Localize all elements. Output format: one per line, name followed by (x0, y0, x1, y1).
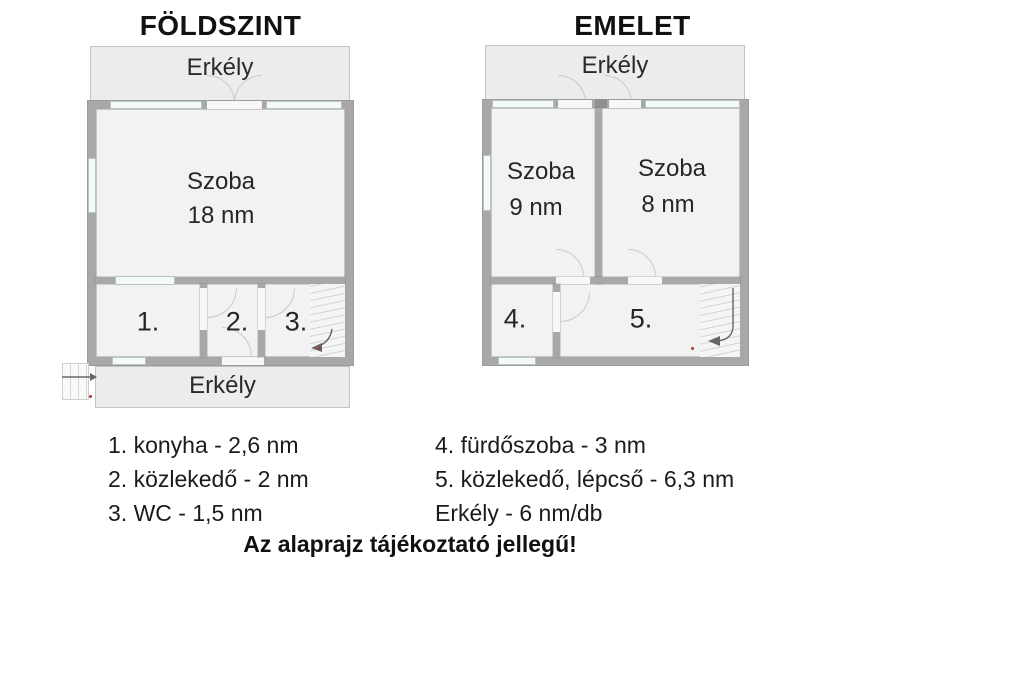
red-mark (89, 395, 92, 398)
ground-balcony-bottom: Erkély (95, 366, 350, 408)
balcony-label: Erkély (96, 367, 349, 400)
room-number: 4. (504, 304, 527, 335)
footer-note: Az alaprajz tájékoztató jellegű! (90, 531, 730, 558)
pass-through-window (115, 276, 175, 285)
window (266, 101, 342, 109)
red-mark (318, 347, 321, 350)
room-number: 5. (630, 304, 653, 335)
legend-item: 2. közlekedő - 2 nm (108, 462, 309, 496)
window (645, 100, 740, 108)
legend-left-column: 1. konyha - 2,6 nm 2. közlekedő - 2 nm 3… (108, 428, 309, 530)
balcony-label: Erkély (486, 46, 744, 80)
room-name: Szoba (187, 168, 255, 196)
balcony-door-opening (609, 100, 641, 108)
window (112, 357, 146, 365)
wall (491, 277, 740, 284)
window (492, 100, 554, 108)
room-number: 2. (226, 307, 249, 338)
window (88, 158, 96, 213)
door-opening (628, 277, 662, 284)
balcony-label: Erkély (91, 47, 349, 82)
door-opening (553, 292, 560, 332)
floor-plan-sheet: FÖLDSZINT Erkély Szoba 18 nm 1. 2. 3. Er… (0, 0, 1024, 698)
legend-right-column: 4. fürdőszoba - 3 nm 5. közlekedő, lépcs… (435, 428, 734, 530)
legend-item: Erkély - 6 nm/db (435, 496, 734, 530)
room-name: Szoba (507, 158, 575, 186)
room-area: 8 nm (641, 191, 694, 219)
legend-item: 4. fürdőszoba - 3 nm (435, 428, 734, 462)
balcony-door-opening (558, 100, 592, 108)
upper-floor-title: EMELET (500, 10, 765, 42)
stairs-down-arrow-icon (700, 286, 740, 352)
window (483, 155, 491, 211)
entrance-door-opening (222, 357, 264, 365)
room-name: Szoba (638, 155, 706, 183)
room-area: 9 nm (509, 194, 562, 222)
door-opening (556, 277, 590, 284)
legend-item: 3. WC - 1,5 nm (108, 496, 309, 530)
window (110, 101, 202, 109)
room-area: 18 nm (188, 202, 255, 230)
ground-floor-title: FÖLDSZINT (88, 10, 353, 42)
room-number: 3. (285, 307, 308, 338)
wall (595, 99, 607, 108)
room-number: 1. (137, 307, 160, 338)
red-mark (691, 347, 694, 350)
legend-item: 1. konyha - 2,6 nm (108, 428, 309, 462)
balcony-door-opening (207, 101, 262, 109)
entrance-arrow-icon (62, 371, 98, 383)
window (498, 357, 536, 365)
stairs-up-arrow-icon (308, 325, 338, 355)
door-opening (200, 288, 207, 330)
legend-item: 5. közlekedő, lépcső - 6,3 nm (435, 462, 734, 496)
door-opening (258, 288, 265, 330)
wall (595, 108, 602, 284)
